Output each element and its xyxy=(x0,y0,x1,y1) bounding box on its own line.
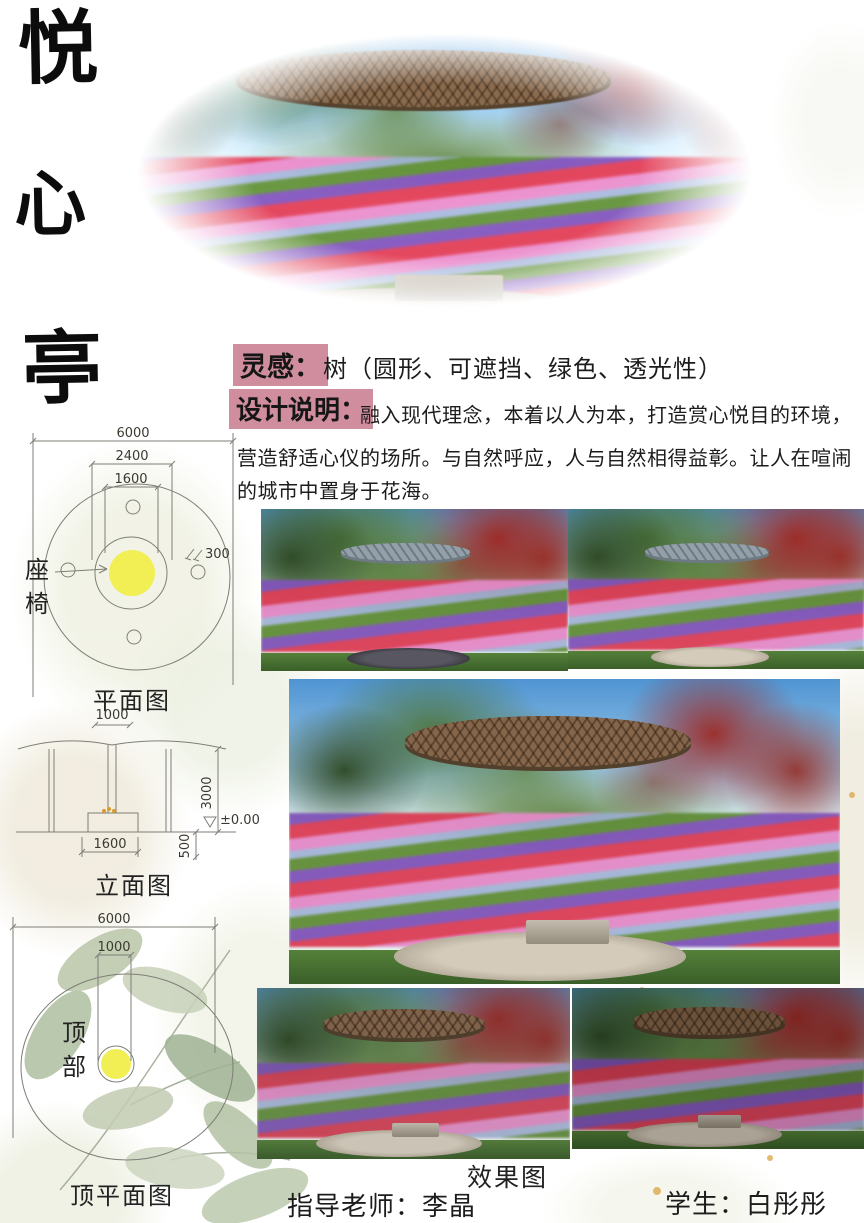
seat-label-1: 座 xyxy=(25,557,49,584)
pavilion-roof xyxy=(341,543,470,561)
plan-dim-300: 300 xyxy=(205,547,230,562)
plan-dim-2400: 2400 xyxy=(115,449,148,464)
topplan-dim-6000: 6000 xyxy=(97,912,130,927)
topplan-dim-1000: 1000 xyxy=(97,940,130,955)
render-image-steel-dark-base xyxy=(261,509,568,671)
flower-field-layer xyxy=(261,580,568,651)
elev-dim-3000: 3000 xyxy=(200,776,215,809)
design-note-line2: 营造舒适心仪的场所。与自然呼应，人与自然相得益彰。让人在喧闹 xyxy=(237,442,852,471)
design-note-line1: 融入现代理念，本着以人为本，打造赏心悦目的环境， xyxy=(360,399,852,428)
pavilion-roof xyxy=(405,716,692,768)
bench xyxy=(395,275,503,302)
student-credit: 学生：白彤彤 xyxy=(665,1184,827,1221)
flower-field-layer xyxy=(568,579,864,649)
top-plan-drawing: 6000 1000 顶 部 xyxy=(0,903,256,1203)
elev-dim-500: 500 xyxy=(178,834,193,859)
design-note-label-highlight: 设计说明： xyxy=(229,389,373,429)
design-note-label: 设计说明： xyxy=(229,389,373,429)
elevation-caption: 立面图 xyxy=(95,866,173,901)
inspiration-text: 树（圆形、可遮挡、绿色、透光性） xyxy=(323,349,723,384)
pavilion-roof xyxy=(645,543,769,561)
bench xyxy=(698,1115,742,1128)
advisor-credit: 指导老师：李晶 xyxy=(287,1186,476,1223)
top-plan-caption: 顶平面图 xyxy=(70,1176,174,1211)
hero-render-image xyxy=(85,10,805,345)
render-image-bottom-right xyxy=(572,988,864,1149)
seat-arrow xyxy=(55,565,107,573)
title-char-2: 心 xyxy=(13,167,86,240)
elev-dim-1600: 1600 xyxy=(93,837,126,852)
bench xyxy=(392,1123,439,1137)
elev-level-mark: ±0.00 xyxy=(220,813,260,828)
renders-caption: 效果图 xyxy=(467,1158,548,1194)
top-center-circle xyxy=(101,1049,131,1079)
top-label-1: 顶 xyxy=(62,1021,86,1047)
plan-view-drawing: 6000 2400 1600 300 座 椅 xyxy=(15,425,260,717)
pavilion-roof xyxy=(323,1009,486,1038)
top-label-2: 部 xyxy=(62,1054,86,1081)
plan-dim-6000: 6000 xyxy=(116,426,149,441)
seat-label-2: 椅 xyxy=(25,591,49,618)
design-poster: 悦 心 亭 灵感： 树（圆形、可遮挡、绿色、透光性） 设计说明： 融入现代理念，… xyxy=(0,0,864,1223)
pavilion-roof xyxy=(236,50,610,107)
inspiration-label: 灵感： xyxy=(233,344,328,386)
render-image-bottom-left xyxy=(257,988,570,1159)
elev-dim-1000: 1000 xyxy=(95,708,128,723)
plan-circles xyxy=(44,484,230,670)
seat-circle xyxy=(109,550,155,596)
plan-offset-dim xyxy=(185,549,202,561)
main-render-image xyxy=(289,679,840,984)
inspiration-label-highlight: 灵感： xyxy=(233,344,328,386)
render-image-steel-light-base xyxy=(568,509,864,669)
plan-dim-1600: 1600 xyxy=(114,472,147,487)
bench xyxy=(526,920,609,944)
pavilion-roof xyxy=(633,1007,785,1034)
design-note-line3: 的城市中置身于花海。 xyxy=(237,475,442,504)
